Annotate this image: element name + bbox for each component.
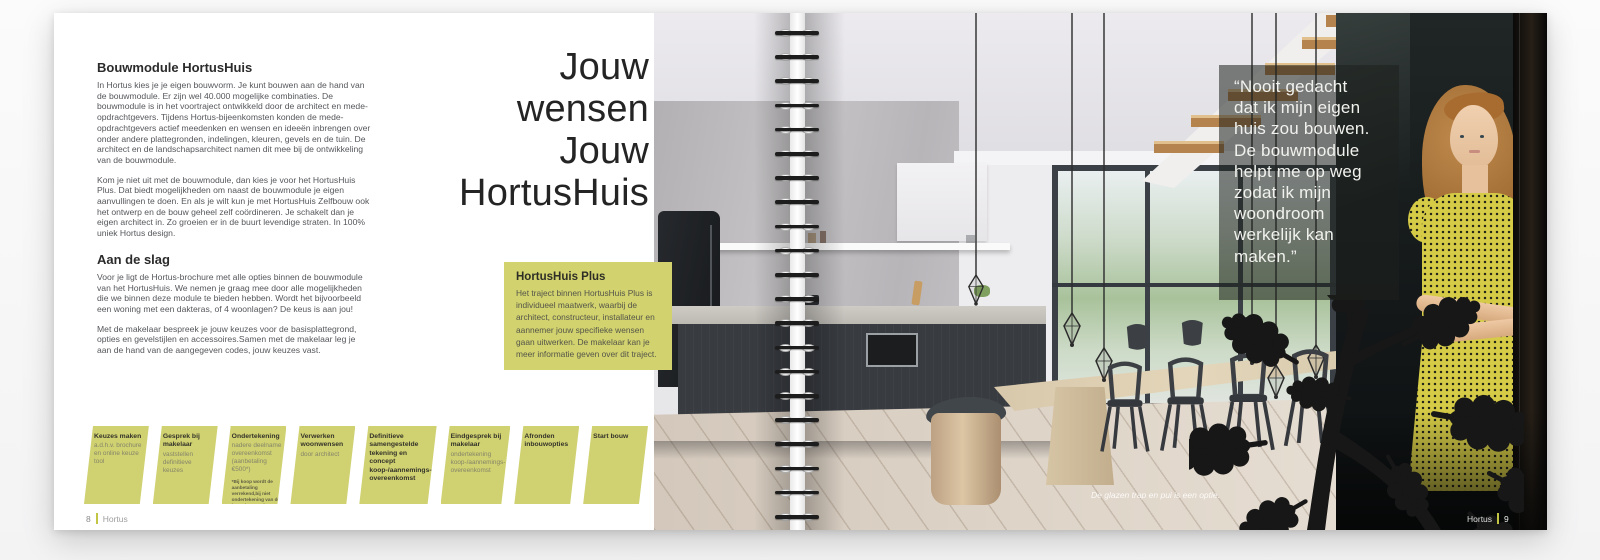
paragraph: In Hortus kies je je eigen bouwvorm. Je … [97,80,371,166]
binding-ring [777,76,817,86]
binding-ring [777,28,817,38]
binding-ring [777,52,817,62]
left-page-footer: 8 Hortus [86,513,128,524]
paragraph: Met de makelaar bespreek je jouw keuzes … [97,324,371,356]
timeline-step-title: Start bouw [593,433,643,441]
quote-text: “Nooit gedacht dat ik mijn eigen huis zo… [1219,65,1399,267]
panel-shadow [1336,410,1547,530]
binding-ring [777,367,817,377]
timeline-step: Afronden inbouwopties [514,426,579,504]
timeline-step-title: Eindgesprek bij makelaar [451,433,506,450]
plus-box-heading: HortusHuis Plus [516,271,660,283]
timeline-step-title: Verwerken woonwensen [300,433,350,450]
woman-face [1450,105,1498,169]
binding-ring [777,415,817,425]
timeline-step: Start bouw [583,426,648,504]
timeline-step-title: Gesprek bij makelaar [163,433,213,450]
binding-ring [777,222,817,232]
timeline-step: Definitieve samengestelde tekening en co… [359,426,436,504]
timeline: Keuzes makena.d.h.v. brochure en online … [84,426,648,504]
timeline-step-footnote: *Bij koop wordt de aanbetaling verrekend… [232,479,282,520]
woman-eye [1460,135,1464,138]
binding-ring [777,512,817,522]
binding-ring [777,125,817,135]
timeline-step-title: Keuzes maken [94,433,144,441]
quote-overlay: “Nooit gedacht dat ik mijn eigen huis zo… [1219,65,1399,300]
timeline-step-body: vaststellen definitieve keuzes [163,451,213,475]
timeline-step-body: ondertekening koop-/aannemings-overeenko… [451,451,506,475]
right-page-footer: Hortus 9 [1467,513,1509,524]
binding-ring [777,318,817,328]
timeline-step: Verwerken woonwensendoor architect [290,426,355,504]
photo-caption: De glazen trap en pui is een optie. [1091,490,1220,500]
binding-ring [777,488,817,498]
woman-eye [1480,135,1484,138]
left-page-text-column: Bouwmodule HortusHuis In Hortus kies je … [97,60,371,365]
paragraph: Kom je niet uit met de bouwmodule, dan k… [97,175,371,239]
section-heading-bouwmodule: Bouwmodule HortusHuis [97,60,371,75]
binding-ring [777,439,817,449]
timeline-step-title: Definitieve samengestelde tekening en co… [369,433,431,483]
footer-divider-bar [96,513,98,524]
timeline-step: Keuzes makena.d.h.v. brochure en online … [84,426,149,504]
timeline-step: Gesprek bij makelaarvaststellen definiti… [153,426,218,504]
footer-brand-label: Hortus [1467,514,1492,524]
binding-ring [777,197,817,207]
binding-ring [777,343,817,353]
page-number: 8 [86,514,91,524]
binding-ring [777,294,817,304]
binding-ring [777,270,817,280]
footer-brand-label: Hortus [103,514,128,524]
timeline-step: Eindgesprek bij makelaarondertekening ko… [441,426,511,504]
timeline-step-body: a.d.h.v. brochure en online keuze tool [94,442,144,466]
page-number: 9 [1504,514,1509,524]
timeline-step-title: Ondertekening [232,433,282,441]
timeline-step-title: Afronden inbouwopties [524,433,574,450]
paragraph: Voor je ligt de Hortus-brochure met alle… [97,272,371,315]
plus-box-body: Het traject binnen HortusHuis Plus is in… [516,287,660,360]
binding-ring [777,149,817,159]
binding-ring [777,246,817,256]
binding-ring [777,464,817,474]
binding-ring [777,173,817,183]
section-heading-aan-de-slag: Aan de slag [97,252,371,267]
footer-divider-bar [1497,513,1499,524]
binding-ring [777,391,817,401]
timeline-step-body: nadere deelname overeenkomst (aanbetalin… [232,442,282,474]
timeline-step-body: door architect [300,451,350,459]
dining-chairs [1102,352,1335,452]
brochure-spread: Bouwmodule HortusHuis In Hortus kies je … [54,13,1547,530]
page-title: Jouw wensen Jouw HortusHuis [434,46,649,214]
timeline-step: Ondertekeningnadere deelname overeenkoms… [222,426,287,504]
woman-hand [1412,323,1428,335]
woman-mouth [1469,150,1480,153]
hortushuis-plus-box: HortusHuis Plus Het traject binnen Hortu… [504,262,672,370]
binding-ring [777,101,817,111]
